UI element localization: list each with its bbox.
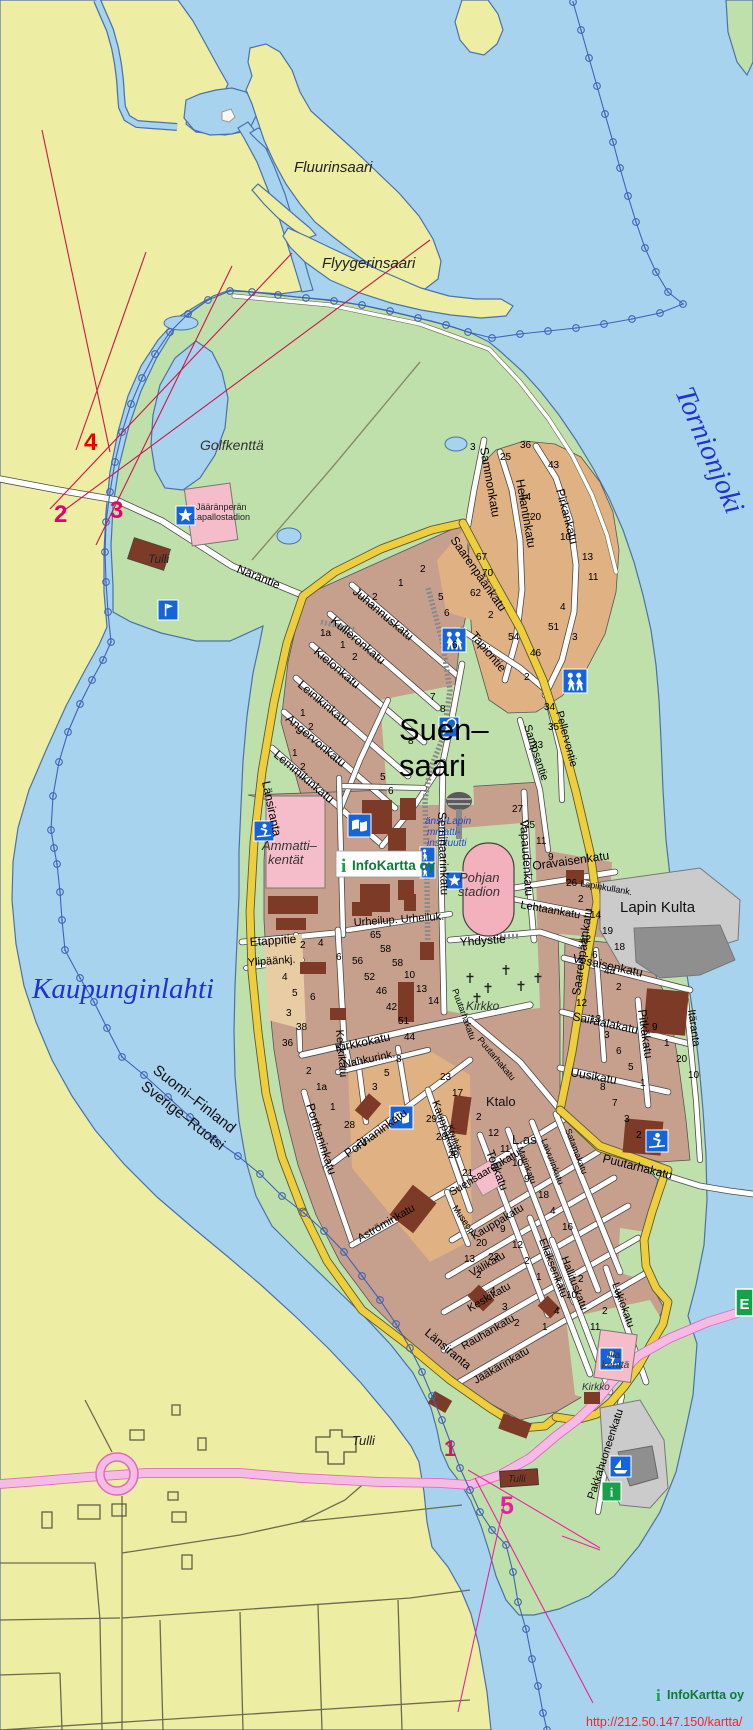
svg-text:1: 1 xyxy=(330,1102,336,1113)
svg-text:46: 46 xyxy=(530,648,542,659)
svg-text:12: 12 xyxy=(576,998,588,1009)
svg-text:1: 1 xyxy=(300,708,306,719)
svg-text:4: 4 xyxy=(550,1206,556,1217)
svg-text:1: 1 xyxy=(444,1436,456,1461)
svg-text:1: 1 xyxy=(536,1272,542,1283)
svg-text:9: 9 xyxy=(524,1174,530,1185)
svg-text:3: 3 xyxy=(572,632,578,643)
svg-text:3: 3 xyxy=(286,1008,292,1019)
svg-text:i: i xyxy=(341,856,346,877)
svg-text:23: 23 xyxy=(440,1072,452,1083)
svg-text:29: 29 xyxy=(426,1114,438,1125)
svg-text:25: 25 xyxy=(524,820,536,831)
svg-text:34: 34 xyxy=(544,702,556,713)
svg-text:8: 8 xyxy=(440,704,446,715)
svg-text:2: 2 xyxy=(372,592,378,603)
svg-text:6: 6 xyxy=(444,608,450,619)
svg-text:Ammatti–: Ammatti– xyxy=(261,838,318,853)
svg-text:3: 3 xyxy=(624,1114,630,1125)
svg-text:20: 20 xyxy=(676,1054,688,1065)
svg-text:19: 19 xyxy=(602,926,614,937)
svg-text:1: 1 xyxy=(398,578,404,589)
svg-text:67: 67 xyxy=(476,552,488,563)
svg-text:2: 2 xyxy=(602,1306,608,1317)
svg-text:5: 5 xyxy=(628,1062,634,1073)
svg-text:3: 3 xyxy=(110,497,123,524)
svg-text:13: 13 xyxy=(416,984,428,995)
svg-text:Fluurinsaari: Fluurinsaari xyxy=(294,159,373,176)
svg-text:5: 5 xyxy=(292,988,298,999)
svg-text:Seminaarinkatu: Seminaarinkatu xyxy=(435,812,452,896)
svg-text:3: 3 xyxy=(470,442,476,453)
svg-text:3: 3 xyxy=(502,1302,508,1313)
svg-text:6: 6 xyxy=(336,952,342,963)
svg-text:12: 12 xyxy=(488,1128,500,1139)
svg-text:2: 2 xyxy=(514,1318,520,1329)
svg-text:36: 36 xyxy=(520,440,532,451)
svg-text:38: 38 xyxy=(296,1022,308,1033)
svg-text:Pohjan: Pohjan xyxy=(459,870,499,885)
svg-text:46: 46 xyxy=(376,986,388,997)
svg-text:36: 36 xyxy=(282,1038,294,1049)
svg-text:8: 8 xyxy=(600,1082,606,1093)
svg-text:56: 56 xyxy=(352,956,364,967)
svg-text:26: 26 xyxy=(566,878,578,889)
svg-text:20: 20 xyxy=(476,1238,488,1249)
svg-text:Tulli: Tulli xyxy=(148,552,169,566)
svg-text:http://212.50.147.150/kartta/: http://212.50.147.150/kartta/ xyxy=(586,1715,743,1729)
svg-text:6: 6 xyxy=(310,992,316,1003)
svg-text:2: 2 xyxy=(524,1256,530,1267)
svg-text:1a: 1a xyxy=(316,1082,328,1093)
svg-text:14: 14 xyxy=(520,492,532,503)
svg-text:10: 10 xyxy=(404,970,416,981)
svg-text:65: 65 xyxy=(370,930,382,941)
svg-text:3: 3 xyxy=(614,1290,620,1301)
svg-text:8: 8 xyxy=(408,736,414,747)
svg-text:12: 12 xyxy=(580,934,592,945)
svg-text:Golfkenttä: Golfkenttä xyxy=(200,437,264,453)
svg-text:35: 35 xyxy=(548,722,560,733)
svg-text:5: 5 xyxy=(438,592,444,603)
svg-text:10: 10 xyxy=(688,1070,700,1081)
svg-text:9: 9 xyxy=(652,1022,658,1033)
svg-text:11: 11 xyxy=(590,1322,601,1333)
svg-text:51: 51 xyxy=(548,622,560,633)
svg-text:2: 2 xyxy=(616,982,622,993)
svg-text:16: 16 xyxy=(562,1222,574,1233)
svg-text:1a: 1a xyxy=(320,628,332,639)
svg-text:70: 70 xyxy=(482,568,494,579)
svg-text:7: 7 xyxy=(612,1098,618,1109)
svg-text:2: 2 xyxy=(476,1112,482,1123)
svg-text:4: 4 xyxy=(490,1286,496,1297)
svg-text:..apallostadion: ..apallostadion xyxy=(192,512,250,522)
svg-text:6: 6 xyxy=(452,640,458,651)
svg-text:2: 2 xyxy=(476,1270,482,1281)
svg-text:2: 2 xyxy=(578,1274,584,1285)
svg-text:saari: saari xyxy=(399,748,466,783)
svg-text:i: i xyxy=(656,1686,661,1705)
svg-text:13: 13 xyxy=(582,552,594,563)
svg-text:24: 24 xyxy=(356,1138,368,1149)
svg-text:2: 2 xyxy=(54,501,67,528)
svg-text:1: 1 xyxy=(640,1078,646,1089)
svg-text:42: 42 xyxy=(386,1002,398,1013)
svg-text:25: 25 xyxy=(500,452,512,463)
svg-text:3: 3 xyxy=(604,1030,610,1041)
svg-text:Tulli: Tulli xyxy=(352,1433,376,1448)
svg-text:11: 11 xyxy=(500,1144,511,1155)
svg-text:13: 13 xyxy=(590,1014,602,1025)
svg-text:28: 28 xyxy=(436,1132,448,1143)
svg-text:Tulli: Tulli xyxy=(508,1474,526,1485)
svg-text:2: 2 xyxy=(306,1066,312,1077)
svg-text:2: 2 xyxy=(420,564,426,575)
svg-text:4: 4 xyxy=(84,429,98,456)
svg-text:2: 2 xyxy=(524,672,530,683)
svg-text:Ktalo: Ktalo xyxy=(486,1094,516,1109)
svg-text:kenttä: kenttä xyxy=(602,1360,630,1371)
svg-text:kentät: kentät xyxy=(268,852,305,867)
svg-text:14: 14 xyxy=(428,996,440,1007)
svg-text:5: 5 xyxy=(384,1068,390,1079)
svg-text:52: 52 xyxy=(364,972,376,983)
svg-text:2: 2 xyxy=(352,652,358,663)
svg-text:6: 6 xyxy=(388,786,394,797)
svg-text:9: 9 xyxy=(500,1224,506,1235)
svg-text:1: 1 xyxy=(292,748,298,759)
svg-text:11: 11 xyxy=(536,836,547,847)
svg-text:4a: 4a xyxy=(604,966,616,977)
svg-text:InfoKartta oy: InfoKartta oy xyxy=(667,1688,744,1702)
svg-text:27: 27 xyxy=(512,804,524,815)
svg-text:51: 51 xyxy=(398,1016,410,1027)
svg-text:2: 2 xyxy=(488,610,494,621)
svg-text:6: 6 xyxy=(616,1046,622,1057)
svg-text:28: 28 xyxy=(344,1120,356,1131)
svg-text:2: 2 xyxy=(300,762,306,773)
svg-text:7: 7 xyxy=(430,692,436,703)
svg-text:1: 1 xyxy=(340,640,346,651)
svg-text:43: 43 xyxy=(548,460,560,471)
svg-text:62: 62 xyxy=(470,588,482,599)
svg-text:20: 20 xyxy=(448,1150,460,1161)
svg-text:33: 33 xyxy=(532,740,544,751)
svg-text:14: 14 xyxy=(590,910,602,921)
svg-text:4: 4 xyxy=(282,972,288,983)
svg-text:58: 58 xyxy=(380,944,392,955)
svg-text:54: 54 xyxy=(508,632,520,643)
svg-text:13: 13 xyxy=(464,1254,476,1265)
svg-text:Jääränperän: Jääränperän xyxy=(196,502,247,512)
svg-text:17: 17 xyxy=(452,1088,464,1099)
svg-text:E: E xyxy=(739,1296,749,1313)
svg-text:4: 4 xyxy=(554,1306,560,1317)
svg-text:3: 3 xyxy=(372,1082,378,1093)
svg-text:2: 2 xyxy=(636,1130,642,1141)
svg-text:18: 18 xyxy=(614,942,626,953)
svg-text:10: 10 xyxy=(512,1158,524,1169)
svg-text:44: 44 xyxy=(404,1032,416,1043)
svg-text:21: 21 xyxy=(462,1168,474,1179)
svg-text:InfoKartta oy: InfoKartta oy xyxy=(352,858,436,873)
svg-text:1: 1 xyxy=(542,1322,548,1333)
svg-text:9: 9 xyxy=(548,852,554,863)
svg-text:2: 2 xyxy=(308,722,314,733)
svg-text:2: 2 xyxy=(300,940,306,951)
svg-text:1: 1 xyxy=(664,1038,670,1049)
svg-text:10: 10 xyxy=(560,532,572,543)
svg-text:4: 4 xyxy=(560,602,566,613)
svg-text:10: 10 xyxy=(566,1290,578,1301)
svg-text:8: 8 xyxy=(396,1054,402,1065)
svg-text:11: 11 xyxy=(588,572,599,583)
svg-text:12: 12 xyxy=(512,1240,524,1251)
svg-text:Lapin Kulta: Lapin Kulta xyxy=(620,899,696,916)
svg-text:4: 4 xyxy=(318,938,324,949)
svg-text:6: 6 xyxy=(592,950,598,961)
svg-text:58: 58 xyxy=(392,958,404,969)
svg-text:18: 18 xyxy=(538,1190,550,1201)
svg-text:20: 20 xyxy=(530,512,542,523)
svg-text:i: i xyxy=(610,1485,614,1500)
svg-text:2: 2 xyxy=(578,894,584,905)
svg-text:5: 5 xyxy=(500,1492,514,1520)
svg-text:Kaupunginlahti: Kaupunginlahti xyxy=(31,973,214,1005)
svg-text:Kirkko: Kirkko xyxy=(466,999,500,1013)
svg-text:5: 5 xyxy=(380,772,386,783)
svg-text:Flyygerinsaari: Flyygerinsaari xyxy=(322,255,416,272)
svg-text:22: 22 xyxy=(488,1252,500,1263)
svg-text:Kirkko: Kirkko xyxy=(582,1382,610,1393)
svg-text:stadion: stadion xyxy=(458,884,500,899)
